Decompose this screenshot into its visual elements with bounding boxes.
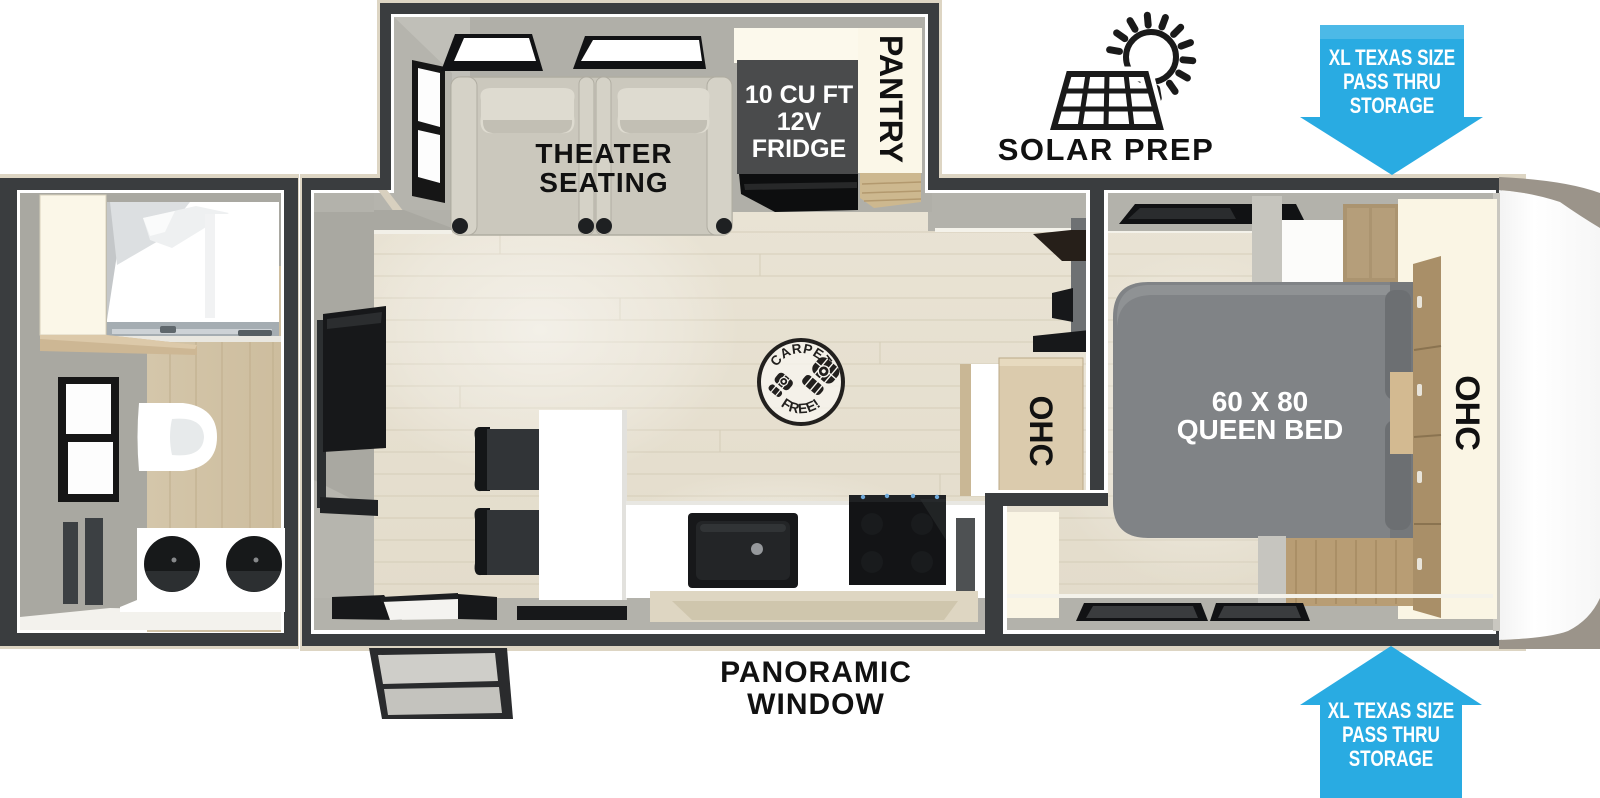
svg-text:OHC: OHC: [1448, 375, 1486, 451]
svg-text:PANORAMIC: PANORAMIC: [720, 656, 912, 689]
svg-text:FRIDGE: FRIDGE: [752, 135, 846, 163]
svg-text:10 CU FT: 10 CU FT: [745, 81, 853, 109]
svg-text:SOLAR PREP: SOLAR PREP: [998, 132, 1215, 167]
svg-text:STORAGE: STORAGE: [1349, 747, 1434, 772]
svg-text:PASS THRU: PASS THRU: [1342, 723, 1440, 748]
svg-text:STORAGE: STORAGE: [1350, 94, 1435, 119]
svg-text:SEATING: SEATING: [539, 167, 668, 198]
svg-text:OHC: OHC: [1023, 395, 1059, 466]
svg-text:XL TEXAS SIZE: XL TEXAS SIZE: [1329, 46, 1455, 71]
svg-text:WINDOW: WINDOW: [747, 688, 885, 721]
svg-text:PASS THRU: PASS THRU: [1343, 70, 1441, 95]
svg-text:XL TEXAS SIZE: XL TEXAS SIZE: [1328, 699, 1454, 724]
svg-text:12V: 12V: [777, 108, 822, 136]
svg-text:THEATER: THEATER: [535, 138, 672, 169]
svg-text:60 X 80: 60 X 80: [1212, 386, 1309, 417]
svg-text:PANTRY: PANTRY: [873, 35, 909, 163]
svg-text:QUEEN BED: QUEEN BED: [1177, 414, 1343, 445]
